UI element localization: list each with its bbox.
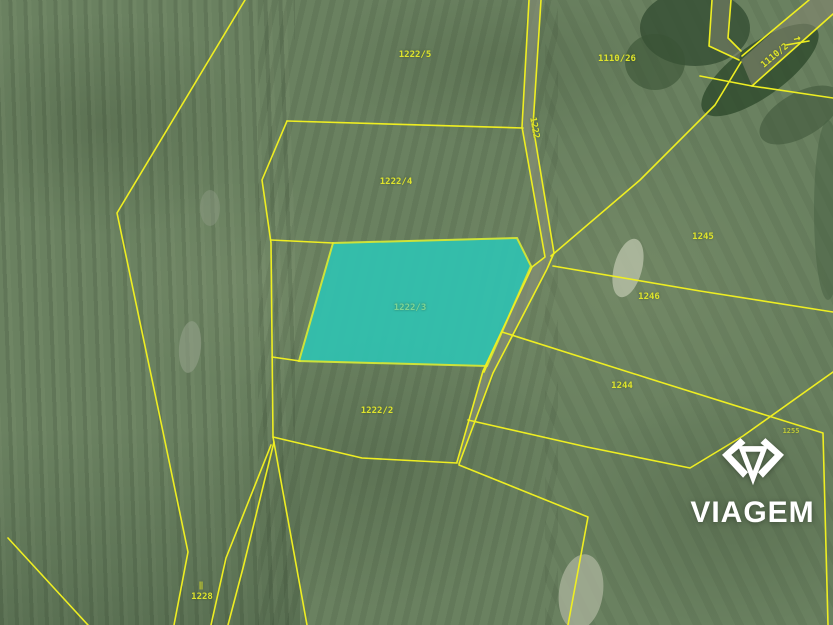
road-right-line (459, 0, 554, 464)
bare-patch-1246 (607, 235, 650, 300)
logo-text: VIAGEM (690, 498, 815, 528)
divider-1222-3-2 (272, 357, 300, 361)
parcel-layer (299, 238, 531, 366)
bare-patch-left (177, 320, 203, 374)
bare-patch-bottom (554, 551, 608, 625)
field-left-boundary (262, 121, 307, 625)
corner-strip-line (8, 538, 88, 625)
aerial-map: 1222/51110/261222/412221222/312451246124… (0, 0, 833, 625)
strip-line-2 (211, 445, 271, 625)
divider-1222-4-3 (271, 240, 333, 243)
divider-1222-5-4 (287, 121, 523, 128)
left-long-boundary (117, 0, 245, 625)
road-ns-fill (457, 0, 554, 464)
fan-east-1 (553, 266, 833, 312)
highlighted-parcel[interactable] (299, 238, 531, 366)
bottom-1222-2-boundary (273, 437, 457, 463)
bare-patch-left-2 (200, 190, 220, 226)
trees-right-edge (814, 120, 833, 300)
viagem-logo: VIAGEM (690, 438, 815, 528)
map-svg (0, 0, 833, 625)
gem-icon (722, 438, 784, 494)
trees-top-right-2 (625, 34, 685, 90)
